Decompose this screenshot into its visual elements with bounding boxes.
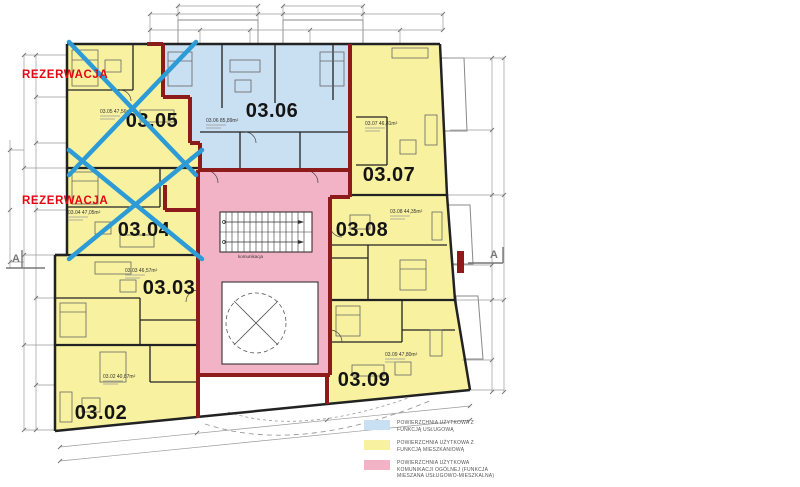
apartment-03-09-area: 03.09 47,80m² <box>385 352 418 358</box>
apartment-03-06-area: 03.06 85,89m² <box>206 118 239 124</box>
apartment-03-07-area: 03.07 46,81m² <box>365 121 398 127</box>
legend-label-service: POWIERZCHNIA UŻYTKOWA Z FUNKCJĄ USŁUGOWĄ <box>397 420 474 433</box>
apartment-03-04-number: 03.04 <box>118 219 171 241</box>
legend-swatch-residential <box>364 440 390 450</box>
section-letter-left: A <box>12 253 20 265</box>
reservation-label-03-04: REZERWACJA <box>22 195 108 207</box>
apartment-03-06-number: 03.06 <box>246 100 299 122</box>
section-letter-right: A <box>490 249 498 261</box>
apartment-03-09-number: 03.09 <box>338 369 391 391</box>
apartment-03-07-number: 03.07 <box>363 164 416 186</box>
legend-item-service: POWIERZCHNIA UŻYTKOWA Z FUNKCJĄ USŁUGOWĄ <box>364 420 534 433</box>
legend-label-residential: POWIERZCHNIA UŻYTKOWA Z FUNKCJĄ MIESZKAN… <box>397 440 474 453</box>
legend-swatch-communication <box>364 460 390 470</box>
apartment-03-08-area: 03.08 44,35m² <box>390 209 423 215</box>
floor-plan-drawing: 03.02 03.03 03.04 03.05 03.06 03.07 03.0… <box>0 0 800 482</box>
legend-label-communication: POWIERZCHNIA UŻYTKOWA KOMUNIKACJI OGÓLNE… <box>397 460 494 480</box>
lightwell <box>222 282 318 364</box>
apartment-03-02-number: 03.02 <box>75 402 128 424</box>
legend-swatch-service <box>364 420 390 430</box>
apartment-03-03-area: 03.03 46,57m² <box>125 268 158 274</box>
legend: POWIERZCHNIA UŻYTKOWA Z FUNKCJĄ USŁUGOWĄ… <box>364 420 534 487</box>
apartment-03-03-number: 03.03 <box>143 277 196 299</box>
reservation-label-03-05: REZERWACJA <box>22 69 108 81</box>
apartment-03-04-area: 03.04 47,05m² <box>68 210 101 216</box>
apartment-03-02-area: 03.02 40,87m² <box>103 374 136 380</box>
staircase <box>220 212 312 252</box>
apartment-03-08-number: 03.08 <box>336 219 389 241</box>
floor-plan-page: { "plan": { "reservation_label": "REZERW… <box>0 0 800 482</box>
legend-item-residential: POWIERZCHNIA UŻYTKOWA Z FUNKCJĄ MIESZKAN… <box>364 440 534 453</box>
core-label: komunikacja <box>238 254 264 259</box>
legend-item-communication: POWIERZCHNIA UŻYTKOWA KOMUNIKACJI OGÓLNE… <box>364 460 534 480</box>
